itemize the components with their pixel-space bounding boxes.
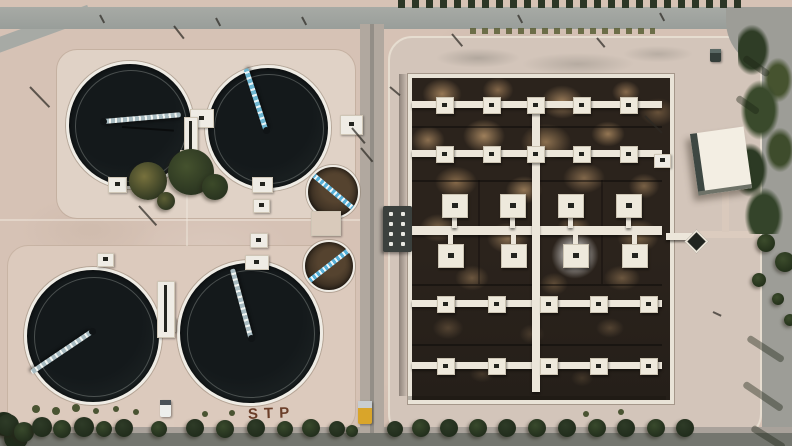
tree xyxy=(32,417,52,437)
aerator-platform xyxy=(640,296,658,313)
aerator-unit xyxy=(443,364,448,368)
aerator-platform-large xyxy=(563,244,589,268)
equipment-unit xyxy=(401,212,405,216)
clarifier-tank-sw xyxy=(24,267,162,405)
shrub xyxy=(52,407,60,415)
tree xyxy=(247,419,265,437)
aerator-platform xyxy=(527,146,545,163)
tree xyxy=(676,419,694,437)
aerator-unit xyxy=(533,103,538,107)
equipment-unit xyxy=(401,222,405,226)
aerator-platform xyxy=(488,296,506,313)
aerator-unit xyxy=(646,302,651,306)
tree xyxy=(498,419,516,437)
light-pole xyxy=(215,18,221,27)
building-wall-south xyxy=(698,184,752,195)
aerator-unit xyxy=(533,152,538,156)
structure-box xyxy=(252,177,273,193)
equipment-unit xyxy=(389,242,393,246)
aerator-unit xyxy=(448,253,454,258)
aerator-unit xyxy=(632,253,638,258)
aerator-unit xyxy=(546,364,551,368)
structure-channel xyxy=(157,281,175,338)
aerator-platform xyxy=(540,296,558,313)
aerator-platform xyxy=(488,358,506,375)
white-van xyxy=(160,400,171,417)
basin-center-walkway xyxy=(532,101,540,392)
yellow-truck xyxy=(358,401,372,424)
aerator-platform-large xyxy=(500,194,526,218)
equipment-unit xyxy=(401,232,405,236)
tree xyxy=(96,421,112,437)
structure-box xyxy=(250,233,268,248)
aerator-unit xyxy=(568,203,574,208)
aerator-unit xyxy=(489,103,494,107)
structure-box xyxy=(245,255,269,270)
structure-box xyxy=(108,177,127,193)
aerator-unit xyxy=(579,152,584,156)
clarifier-tank-nw-center-hub xyxy=(100,118,107,125)
clarifier-tank-sw-inner-ring xyxy=(34,277,155,398)
tree xyxy=(588,419,606,437)
hatch xyxy=(256,238,261,242)
aerator-unit xyxy=(489,152,494,156)
tree xyxy=(784,314,792,326)
aerator-unit xyxy=(546,302,551,306)
distribution-structure xyxy=(383,206,412,252)
shrub xyxy=(93,408,99,414)
tree xyxy=(647,419,665,437)
equipment-unit xyxy=(389,222,393,226)
light-pole xyxy=(713,311,722,317)
aerator-unit xyxy=(510,203,516,208)
tree xyxy=(440,419,458,437)
aerator-platform-large xyxy=(438,244,464,268)
tree-shadow xyxy=(742,381,784,413)
hatch xyxy=(349,122,354,126)
aerator-unit xyxy=(579,103,584,107)
basin-south-shadow xyxy=(408,396,666,400)
tree-shadow xyxy=(746,335,785,364)
tree xyxy=(277,421,293,437)
hatch xyxy=(103,257,108,261)
aerator-platform xyxy=(540,358,558,375)
tree xyxy=(14,422,34,442)
aerator-unit xyxy=(443,302,448,306)
light-pole xyxy=(99,15,105,24)
aerator-platform xyxy=(590,296,608,313)
aerator-unit xyxy=(596,364,601,368)
structure-box xyxy=(654,154,671,168)
tree xyxy=(752,273,766,287)
aerator-platform xyxy=(483,146,501,163)
aerator-unit xyxy=(596,302,601,306)
light-pole xyxy=(659,13,665,22)
tree xyxy=(412,419,430,437)
hatch xyxy=(254,260,259,264)
aerator-platform xyxy=(640,358,658,375)
dark-car-cab xyxy=(710,49,721,53)
aerator-unit xyxy=(442,103,447,107)
light-pole xyxy=(596,37,605,47)
tree xyxy=(528,419,546,437)
aerator-unit xyxy=(626,152,631,156)
small-tank-lower xyxy=(303,240,355,292)
channel-slot xyxy=(164,285,167,332)
tree xyxy=(387,421,403,437)
aerator-unit xyxy=(626,203,632,208)
light-pole xyxy=(29,86,50,108)
tree xyxy=(775,252,792,272)
aerator-platform xyxy=(573,146,591,163)
tree xyxy=(617,419,635,437)
tree xyxy=(74,417,94,437)
hatch xyxy=(660,158,665,162)
light-pole xyxy=(138,205,157,226)
small-tank-upper-scraper-bridge xyxy=(310,172,356,212)
aerator-platform-large xyxy=(442,194,468,218)
aerator-unit xyxy=(494,302,499,306)
structure-box xyxy=(97,253,114,267)
plant-objects-layer xyxy=(0,0,792,446)
aerator-platform-large xyxy=(622,244,648,268)
clarifier-tank-sw-center-hub xyxy=(89,328,96,335)
tree xyxy=(151,421,167,437)
equipment-unit xyxy=(401,242,405,246)
aerator-unit xyxy=(646,364,651,368)
aerator-platform xyxy=(620,97,638,114)
aerator-platform-large xyxy=(616,194,642,218)
hatch xyxy=(260,182,265,186)
aerator-platform xyxy=(590,358,608,375)
dark-car xyxy=(710,49,721,62)
hatch xyxy=(115,182,120,186)
tree xyxy=(772,293,784,305)
light-pole xyxy=(517,15,523,24)
small-tank-lower-scraper-bridge xyxy=(306,247,352,284)
aerator-platform xyxy=(620,146,638,163)
tree xyxy=(53,420,71,438)
tree xyxy=(216,420,234,438)
clarifier-tank-ne-center-hub xyxy=(263,127,270,134)
aerial-photo-treatment-plant: STP xyxy=(0,0,792,446)
aerator-unit xyxy=(442,152,447,156)
white-van-cab xyxy=(160,400,171,405)
tree-shadow xyxy=(750,425,786,446)
aerator-platform xyxy=(573,97,591,114)
aeration-basin xyxy=(408,74,674,404)
clarifier-tank-se-center-hub xyxy=(248,335,255,342)
aerator-platform xyxy=(483,97,501,114)
aerator-platform xyxy=(437,296,455,313)
shrub xyxy=(583,411,589,417)
shrub xyxy=(229,410,235,416)
tree xyxy=(757,234,775,252)
aerator-unit xyxy=(511,253,517,258)
tree xyxy=(115,419,133,437)
aerator-platform xyxy=(436,146,454,163)
shrub xyxy=(202,411,208,417)
tree xyxy=(202,174,228,200)
shrub xyxy=(32,405,40,413)
yellow-truck-cab xyxy=(358,401,372,408)
tree xyxy=(558,419,576,437)
aerator-platform-large xyxy=(501,244,527,268)
tree-shadow xyxy=(742,55,771,78)
building-wall-west xyxy=(690,133,706,195)
equipment-unit xyxy=(389,212,393,216)
tree xyxy=(329,421,345,437)
aerator-unit xyxy=(452,203,458,208)
shrub xyxy=(113,406,119,412)
tree xyxy=(157,192,175,210)
tree xyxy=(186,419,204,437)
shrub xyxy=(72,404,80,412)
aerator-unit xyxy=(626,103,631,107)
tree xyxy=(346,425,358,437)
aerator-platform xyxy=(527,97,545,114)
tree xyxy=(302,419,320,437)
hatch xyxy=(259,203,264,207)
structure-box xyxy=(340,115,363,135)
aerator-unit xyxy=(494,364,499,368)
aerator-platform-large xyxy=(558,194,584,218)
tree xyxy=(469,419,487,437)
structure-box xyxy=(253,199,270,213)
light-pole xyxy=(451,33,463,47)
equipment-unit xyxy=(389,232,393,236)
shrub xyxy=(133,409,139,415)
tree-shadow xyxy=(735,95,760,116)
light-pole xyxy=(360,147,373,162)
aerator-platform xyxy=(436,97,454,114)
hatch xyxy=(199,116,204,120)
aerator-unit xyxy=(573,253,579,258)
light-pole xyxy=(173,25,184,39)
light-pole xyxy=(301,17,307,26)
shrub xyxy=(618,409,624,415)
utility-building xyxy=(690,127,752,196)
structure-pad xyxy=(311,211,341,236)
aerator-platform xyxy=(437,358,455,375)
